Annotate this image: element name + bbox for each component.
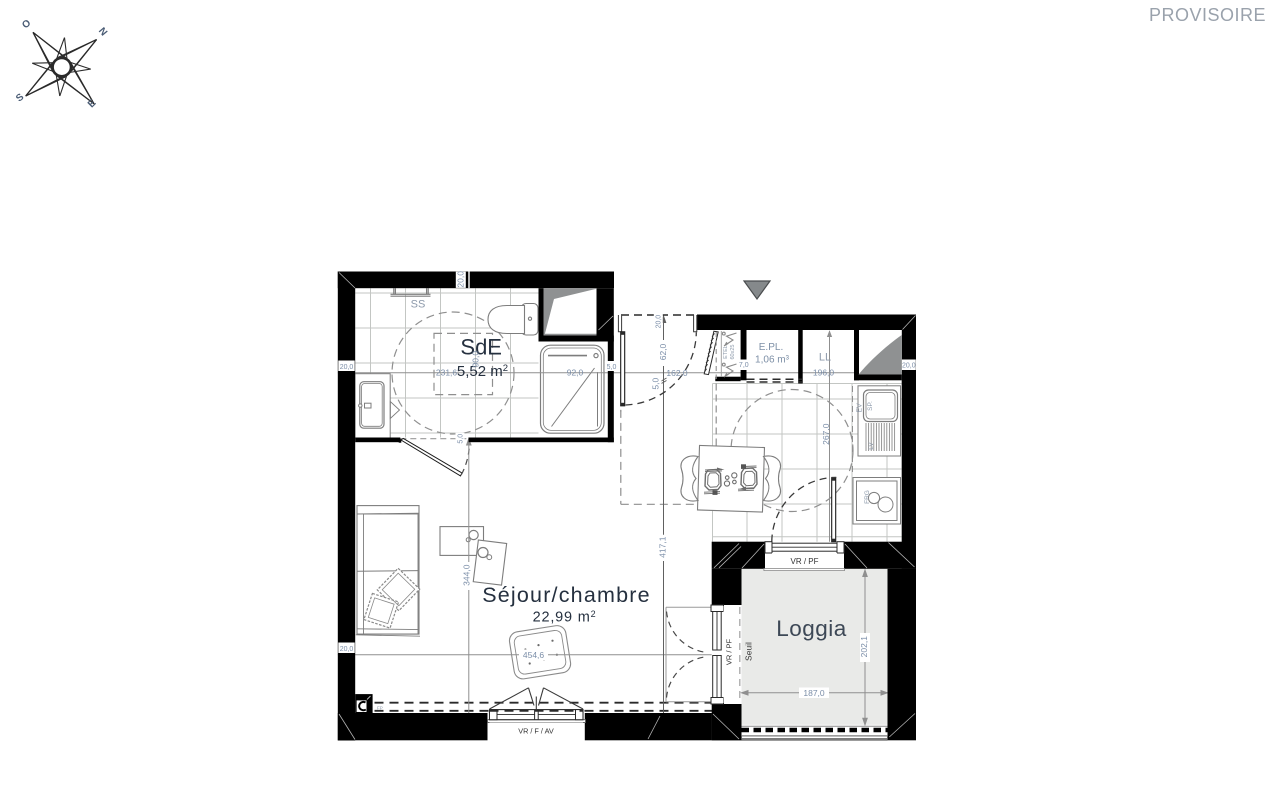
- svg-text:5,52 m2: 5,52 m2: [457, 363, 508, 380]
- svg-text:E.PL.: E.PL.: [759, 342, 783, 353]
- svg-text:267,0: 267,0: [821, 423, 831, 445]
- svg-text:5,0: 5,0: [651, 378, 661, 390]
- svg-text:VR / PF: VR / PF: [790, 557, 818, 566]
- svg-text:417,1: 417,1: [658, 536, 668, 558]
- svg-text:22,99 m2: 22,99 m2: [533, 609, 597, 626]
- svg-text:7,0: 7,0: [739, 362, 749, 369]
- svg-text:454,6: 454,6: [523, 650, 545, 660]
- svg-text:5,0: 5,0: [607, 364, 617, 371]
- svg-text:162,0: 162,0: [666, 368, 688, 378]
- svg-text:90,0: 90,0: [471, 351, 481, 368]
- svg-text:VR / F / AV: VR / F / AV: [518, 727, 554, 736]
- svg-text:SS: SS: [411, 299, 426, 311]
- svg-text:LV: LV: [868, 442, 875, 450]
- svg-text:92,0: 92,0: [567, 368, 584, 378]
- svg-text:LL: LL: [819, 352, 831, 364]
- svg-text:231,6: 231,6: [436, 368, 458, 378]
- svg-text:O: O: [20, 18, 33, 32]
- svg-text:60x25: 60x25: [730, 345, 736, 360]
- svg-text:20,0: 20,0: [902, 363, 916, 370]
- svg-text:SP.: SP.: [867, 401, 874, 411]
- svg-text:S: S: [14, 92, 26, 105]
- svg-text:PROVISOIRE: PROVISOIRE: [1149, 5, 1266, 25]
- svg-text:N: N: [96, 26, 109, 39]
- svg-text:196,0: 196,0: [813, 368, 835, 378]
- svg-text:202,1: 202,1: [859, 636, 869, 658]
- svg-text:344,0: 344,0: [461, 564, 471, 586]
- svg-text:20,0: 20,0: [340, 646, 354, 653]
- svg-text:20,0: 20,0: [340, 364, 354, 371]
- svg-text:EV: EV: [857, 403, 864, 413]
- svg-text:5,0: 5,0: [458, 434, 465, 444]
- svg-text:Seuil: Seuil: [744, 642, 754, 661]
- svg-text:E: E: [86, 98, 99, 111]
- svg-text:FP: FP: [377, 706, 383, 711]
- svg-text:ETEL: ETEL: [723, 345, 729, 359]
- svg-text:1,06 m³: 1,06 m³: [755, 355, 790, 366]
- svg-text:Séjour/chambre: Séjour/chambre: [482, 583, 651, 607]
- svg-text:Loggia: Loggia: [776, 616, 847, 641]
- svg-text:VR / PF: VR / PF: [725, 638, 734, 665]
- svg-text:FRG: FRG: [864, 490, 871, 504]
- svg-text:62,0: 62,0: [658, 343, 668, 360]
- svg-text:187,0: 187,0: [803, 688, 825, 698]
- svg-text:20,0: 20,0: [655, 315, 662, 329]
- svg-text:SdE: SdE: [460, 335, 502, 360]
- svg-text:20,0: 20,0: [456, 271, 466, 288]
